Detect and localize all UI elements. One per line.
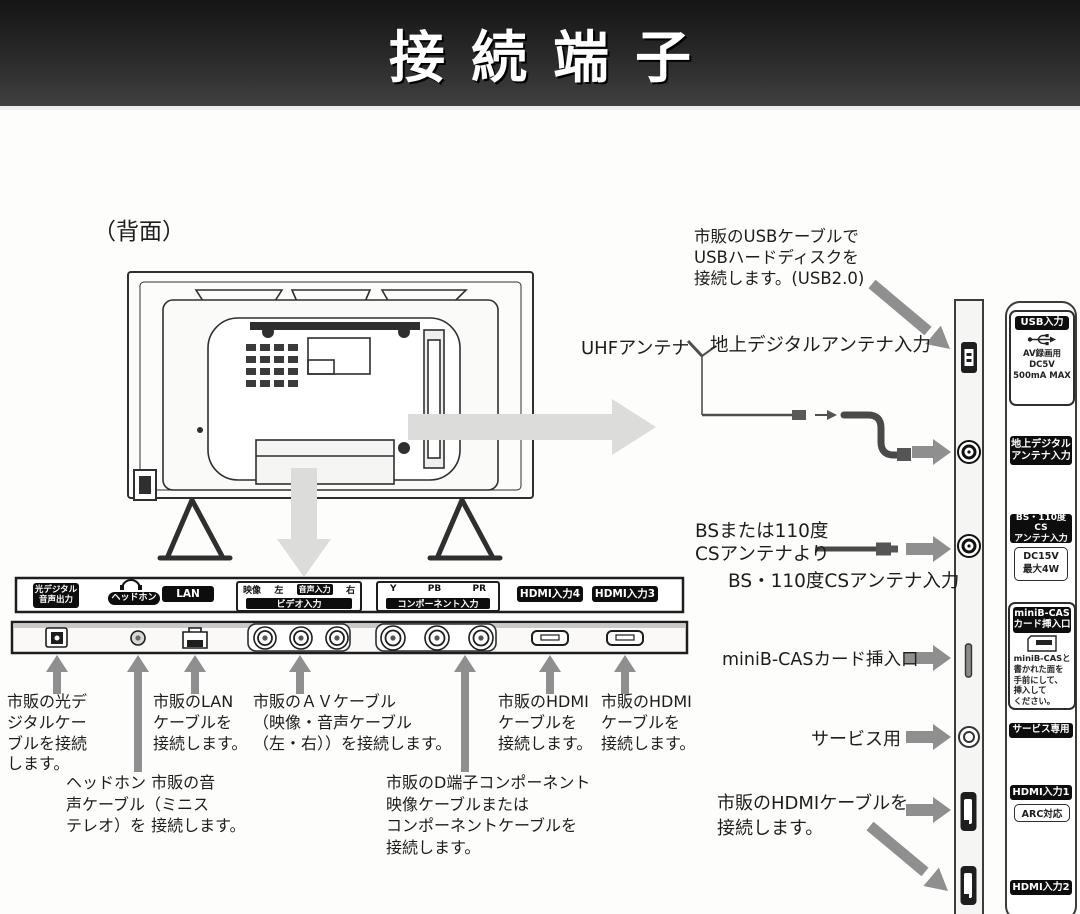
component-input-jacks bbox=[376, 624, 496, 651]
legend-hdmi1-detail: ARC対応 bbox=[1014, 804, 1070, 822]
legend-minibcas-note: miniB-CASと 書かれた面を 手前にして、 挿入して ください。 bbox=[1014, 653, 1071, 707]
component-y-label: Y bbox=[390, 584, 397, 594]
headphone-note: ヘッドホン 市販の音 声ケーブル（ミニス テレオ）を 接続します。 bbox=[66, 772, 246, 837]
optical-label: 光デジタル 音声出力 bbox=[33, 583, 79, 608]
hdmi-note: 市販のHDMIケーブルを 接続します。 bbox=[717, 791, 908, 841]
tv-side-strip bbox=[955, 300, 983, 914]
video-input-group: 映像 左 音声入力 右 ビデオ入力 bbox=[236, 581, 362, 612]
legend-hdmi2-label: HDMI入力2 bbox=[1010, 880, 1072, 895]
usb-icon bbox=[1027, 332, 1057, 347]
hdmi3-note: 市販のHDMI ケーブルを 接続します。 bbox=[601, 692, 695, 754]
headphone-icon bbox=[119, 576, 143, 590]
bs-input-label: BS・110度CSアンテナ入力 bbox=[728, 567, 959, 593]
component-note: 市販のD端子コンポーネント 映像ケーブルまたは コンポーネントケーブルを 接続し… bbox=[386, 772, 590, 858]
manual-page: 接続端子 bbox=[0, 0, 1080, 914]
hdmi1-port bbox=[961, 792, 977, 831]
hdmi2-port bbox=[961, 866, 977, 905]
terrestrial-input-label: 地上デジタルアンテナ入力 bbox=[710, 331, 931, 357]
bs-source-label: BSまたは110度 CSアンテナより bbox=[695, 520, 830, 566]
component-input-group: Y PB PR コンポーネント入力 bbox=[376, 581, 500, 612]
legend-terrestrial-label: 地上デジタル アンテナ入力 bbox=[1010, 436, 1072, 465]
b-cas-card-icon bbox=[1027, 635, 1057, 652]
legend-service-label: サービス専用 bbox=[1009, 723, 1073, 738]
bs-cs-antenna-port bbox=[958, 535, 980, 557]
component-input-bar: コンポーネント入力 bbox=[386, 598, 490, 609]
usb-note: 市販のUSBケーブルで USBハードディスクを 接続します。(USB2.0) bbox=[694, 226, 864, 289]
lan-note: 市販のLAN ケーブルを 接続します。 bbox=[153, 692, 247, 754]
uhf-antenna-label: UHFアンテナ bbox=[581, 334, 689, 360]
usb-port bbox=[961, 342, 977, 373]
video-input-bar: ビデオ入力 bbox=[246, 598, 352, 609]
headphone-label: ヘッドホン bbox=[108, 592, 160, 605]
optical-note: 市販の光デ ジタルケー ブルを接続 します。 bbox=[7, 692, 87, 775]
video-left-label: 左 bbox=[274, 583, 283, 596]
terrestrial-antenna-port bbox=[958, 441, 980, 463]
hdmi3-label: HDMI入力3 bbox=[592, 586, 658, 602]
lan-label: LAN bbox=[162, 586, 214, 602]
component-pr-label: PR bbox=[472, 584, 486, 594]
av-note: 市販のＡＶケーブル （映像・音声ケーブル （左・右））を接続します。 bbox=[253, 692, 451, 754]
hdmi4-note: 市販のHDMI ケーブルを 接続します。 bbox=[498, 692, 592, 754]
service-port bbox=[959, 727, 979, 747]
legend-usb-label: USB入力 bbox=[1015, 316, 1069, 330]
legend-usb-item: USB入力 AV録画用 DC5V 500mA MAX bbox=[1009, 310, 1075, 406]
video-label: 映像 bbox=[243, 583, 261, 596]
video-input-row: 映像 左 音声入力 右 bbox=[238, 583, 360, 595]
hdmi4-port bbox=[532, 631, 568, 645]
audio-input-chip: 音声入力 bbox=[297, 584, 333, 595]
hdmi3-port bbox=[607, 631, 643, 645]
video-right-label: 右 bbox=[346, 583, 355, 596]
legend-usb-detail: AV録画用 DC5V 500mA MAX bbox=[1013, 349, 1071, 382]
uhf-antenna-cable bbox=[688, 341, 911, 461]
video-input-jacks bbox=[248, 624, 350, 651]
minibcas-slot bbox=[966, 644, 972, 677]
minibcas-label: miniB-CASカード挿入口 bbox=[722, 646, 918, 671]
component-input-row: Y PB PR bbox=[378, 583, 498, 595]
legend-minibcas-label: miniB-CAS カード挿入口 bbox=[1013, 607, 1071, 633]
legend-bs-detail: DC15V 最大4W bbox=[1014, 547, 1068, 581]
legend-hdmi1-label: HDMI入力1 bbox=[1010, 785, 1072, 800]
legend-minibcas-item: miniB-CAS カード挿入口 miniB-CASと 書かれた面を 手前にして… bbox=[1008, 602, 1076, 710]
service-label: サービス用 bbox=[811, 725, 901, 751]
hdmi4-label: HDMI入力4 bbox=[517, 586, 583, 602]
rear-view-label: （背面） bbox=[93, 212, 185, 246]
optical-audio-port bbox=[46, 628, 67, 647]
headphone-jack bbox=[131, 631, 145, 645]
component-pb-label: PB bbox=[428, 584, 441, 594]
legend-bs-label: BS・110度CS アンテナ入力 bbox=[1010, 514, 1072, 543]
